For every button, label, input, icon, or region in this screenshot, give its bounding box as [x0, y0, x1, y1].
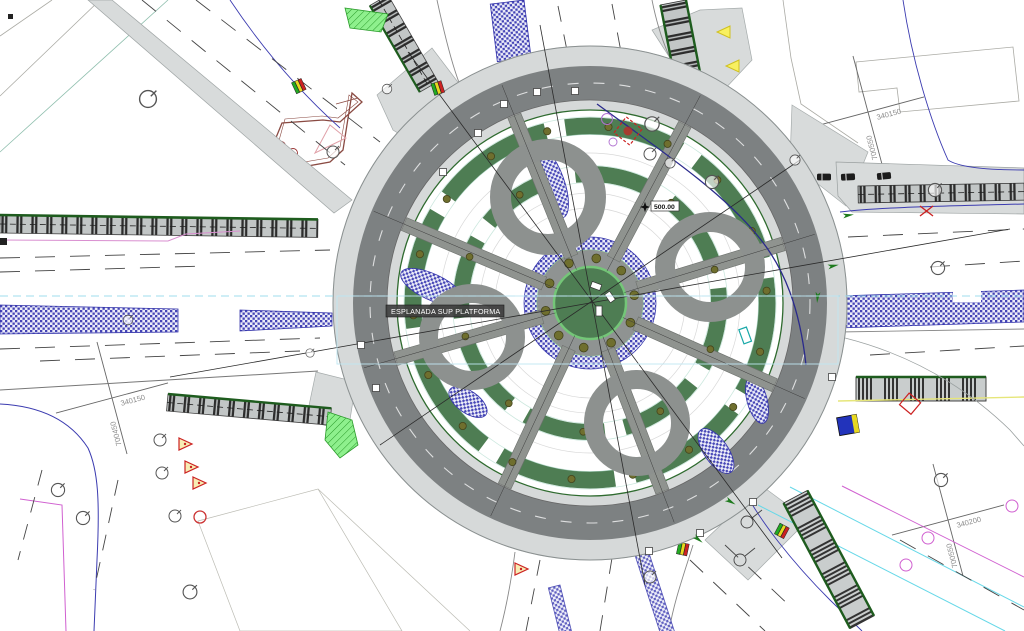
- teal-car-icon: [739, 327, 752, 344]
- guardrail-strip-southwest: [167, 394, 332, 425]
- shrub-dot: [516, 191, 523, 198]
- crosswalk-square: [646, 548, 653, 555]
- crosswalk-square: [829, 374, 836, 381]
- bus-platform-east: [856, 377, 986, 401]
- building-outline: [856, 47, 1019, 112]
- shrub-dot: [544, 128, 551, 135]
- crosswalk-square: [373, 385, 380, 392]
- crosswalk-square: [534, 89, 541, 96]
- crosswalk-square: [572, 88, 579, 95]
- site-plan-canvas: 700550 340150 700450 340150 700550 34020…: [0, 0, 1024, 631]
- crosswalk-square: [697, 530, 704, 537]
- survey-mark: [8, 14, 13, 19]
- shrub-dot: [487, 153, 494, 160]
- red-circle-marker: [194, 511, 206, 523]
- shrub-dot: [466, 253, 473, 260]
- shrub-dot: [664, 140, 671, 147]
- east-road: [817, 0, 1024, 446]
- shrub-dot: [757, 348, 764, 355]
- grid-cross-bottom-left: 700450 340150: [41, 327, 183, 469]
- shrub-dot: [592, 254, 601, 263]
- shrub-dot: [565, 259, 574, 268]
- crosswalk-square: [475, 130, 482, 137]
- platform-label: ESPLANADA SUP PLATFORMA: [386, 305, 504, 317]
- shrub-dot: [711, 266, 718, 273]
- shrub-dot: [617, 266, 626, 275]
- shrub-dot: [763, 287, 770, 294]
- shrub-dot: [545, 279, 554, 288]
- shrub-dot: [607, 338, 616, 347]
- grid-cross-bottom-right: 700550 340200: [877, 449, 1019, 591]
- crosswalk-square: [358, 342, 365, 349]
- shrub-dot: [459, 422, 466, 429]
- shrub-dot: [425, 371, 432, 378]
- median-hatch-west: [0, 305, 178, 334]
- crosswalk-square: [750, 499, 757, 506]
- shrub-dot: [443, 195, 450, 202]
- shrub-dot: [707, 346, 714, 353]
- lane-markings: [0, 250, 330, 361]
- green-patch-southwest: [325, 412, 358, 458]
- shrub-dot: [730, 403, 737, 410]
- shrub-dot: [554, 331, 563, 340]
- roundabout-plan-drawing: 700550 340150 700450 340150 700550 34020…: [0, 0, 1024, 631]
- shrub-dot: [416, 251, 423, 258]
- svg-text:500.00: 500.00: [654, 204, 675, 211]
- tram-platform-southeast: [784, 490, 875, 628]
- shrub-dot: [685, 446, 692, 453]
- median-hatch-north: [490, 0, 531, 62]
- shrub-dot: [505, 400, 512, 407]
- blue-sign-icon: [837, 414, 860, 435]
- guardrail-strip-west: [0, 215, 318, 237]
- shrub-dot: [579, 343, 588, 352]
- shrub-dot: [657, 408, 664, 415]
- shrub-dot: [568, 475, 575, 482]
- crosswalk-square: [440, 169, 447, 176]
- svg-text:ESPLANADA SUP PLATFORMA: ESPLANADA SUP PLATFORMA: [391, 307, 500, 316]
- west-road: [0, 215, 332, 390]
- crosswalk-square: [501, 101, 508, 108]
